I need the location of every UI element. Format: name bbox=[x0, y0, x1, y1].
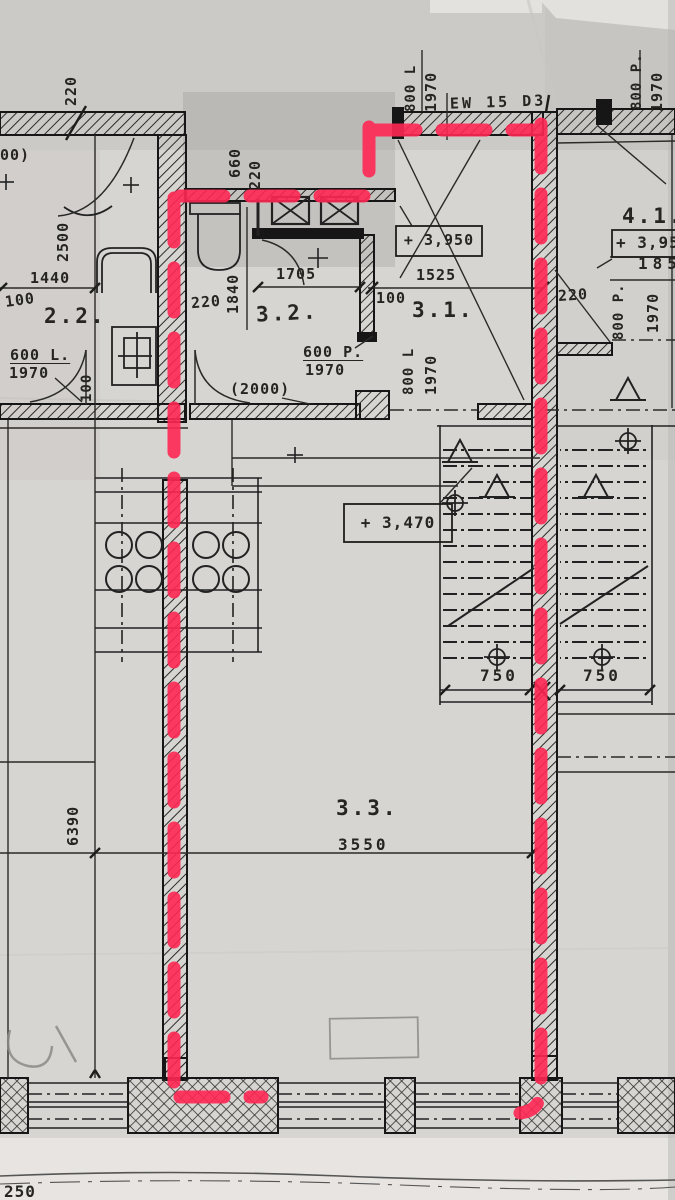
dim-1840-label: 1840 bbox=[226, 274, 241, 314]
dim-100-left-vertical-label: 100 bbox=[80, 374, 94, 402]
pencil-marks bbox=[8, 1017, 418, 1066]
room-4-1-label: 4.1. bbox=[622, 206, 675, 227]
dim-2500-label: 2500 bbox=[56, 222, 71, 262]
room-3-2-label: 3.2. bbox=[255, 301, 319, 325]
room-3-1-label: 3.1. bbox=[412, 300, 475, 321]
dim-750-right-label: 750 bbox=[583, 668, 621, 684]
dim-185-label: 185 bbox=[638, 256, 675, 272]
dim-250-label: 250 bbox=[4, 1184, 36, 1200]
dim-3550-label: 3550 bbox=[338, 837, 389, 853]
dim-100-mid-label: 100 bbox=[376, 291, 406, 306]
floorplan-drawing bbox=[0, 0, 675, 1200]
dim-220-topleft-label: 220 bbox=[64, 76, 79, 106]
dim-1970-mid-label: 1970 bbox=[424, 355, 439, 395]
dim-cut-topleft-label: 00) bbox=[0, 148, 30, 163]
dim-1705-label: 1705 bbox=[276, 267, 316, 282]
dim-220-right-label: 220 bbox=[558, 287, 589, 304]
dim-100-left-label: 100 bbox=[4, 291, 36, 310]
dim-800P-topright-label: 800 P. bbox=[630, 53, 644, 110]
room-3-3-label: 3.3. bbox=[336, 798, 399, 819]
room-2-2-label: 2.2. bbox=[44, 306, 107, 327]
floorplan-photo: EW 15 D3 800 L 1970 800 P. 1970 220 00) … bbox=[0, 0, 675, 1200]
door-tag-label: EW 15 D3 bbox=[450, 93, 547, 111]
door-600P-height-label: 1970 bbox=[305, 363, 345, 378]
dim-660-label: 660 bbox=[228, 148, 243, 178]
dim-1970-midright-label: 1970 bbox=[646, 293, 661, 333]
door-600L-height-label: 1970 bbox=[9, 366, 49, 381]
dim-800L-top-label: 800 L bbox=[404, 65, 418, 112]
dim-6390-label: 6390 bbox=[66, 806, 81, 846]
elevation-395-label: + 3,95 bbox=[616, 235, 675, 251]
dim-1440-label: 1440 bbox=[30, 271, 70, 286]
dim-220-wc-label: 220 bbox=[190, 294, 221, 312]
dim-800P-mid-label: 800 P. bbox=[612, 283, 626, 340]
dim-1970-top-label: 1970 bbox=[424, 72, 439, 112]
dim-220-corridor-label: 220 bbox=[248, 160, 263, 190]
elevation-3950-label: + 3,950 bbox=[396, 233, 482, 248]
dim-750-left-label: 750 bbox=[480, 668, 518, 684]
dim-1525-label: 1525 bbox=[416, 268, 456, 283]
elevation-3470-label: + 3,470 bbox=[344, 515, 452, 531]
door-600L-label: 600 L. bbox=[10, 348, 70, 363]
dim-800L-mid-label: 800 L bbox=[402, 348, 416, 395]
door-600P-label: 600 P. bbox=[303, 345, 363, 360]
dim-1970-topright-label: 1970 bbox=[650, 72, 665, 112]
dim-2000-label: (2000) bbox=[230, 382, 290, 397]
